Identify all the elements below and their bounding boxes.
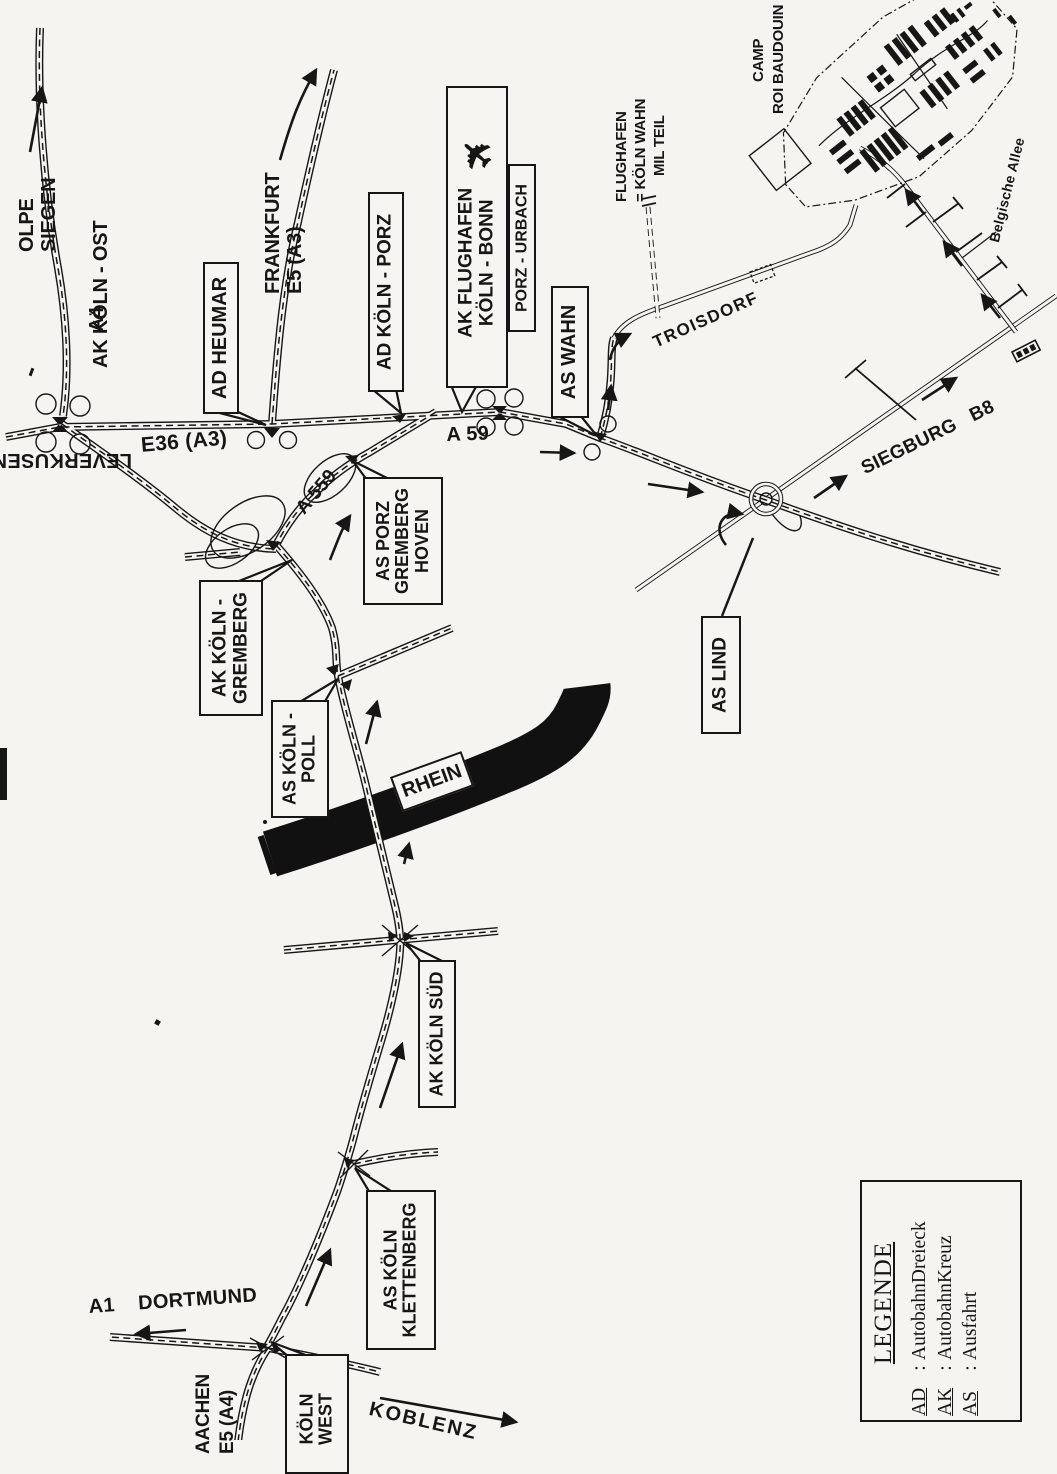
legend-content: LEGENDE AD : AutobahnDreieck AK : Autoba… xyxy=(870,1190,1016,1416)
label-leverkusen: LEVERKUSEN xyxy=(0,448,132,471)
label-flughafen-koeln-wahn: FLUGHAFEN= KÖLN WAHNMIL TEIL xyxy=(613,99,669,202)
label-frankfurt: FRANKFURTE5 (A3) xyxy=(262,172,307,294)
junction-label-ak-koeln-gremberg: AK KÖLN -GREMBERG xyxy=(199,580,263,716)
label-ak-koeln-ost: AK KÖLN - OST xyxy=(90,221,112,368)
legend-row-ak: AK : AutobahnKreuz xyxy=(933,1190,959,1416)
junction-label-ad-heumar: AD HEUMAR xyxy=(203,262,239,414)
junction-label-as-porz-gremberg-hoven: AS PORZGREMBERGHOVEN xyxy=(363,477,443,605)
outlying-buildings xyxy=(950,0,975,23)
junction-label-as-wahn: AS WAHN xyxy=(551,286,589,418)
junction-label-koeln-west: KÖLNWEST xyxy=(285,1354,349,1474)
junction-label-as-koeln-klettenberg: AS KÖLNKLETTENBERG xyxy=(366,1190,436,1350)
legend-title: LEGENDE xyxy=(870,1190,898,1416)
junction-label-as-lind: AS LIND xyxy=(701,616,741,734)
junction-label-lines: AK FLUGHAFENKÖLN - BONN xyxy=(456,188,497,338)
label-camp-roi-baudouin: CAMPROI BAUDOUIN xyxy=(749,5,790,114)
striped-building-icon xyxy=(1012,340,1040,362)
junction-label-ak-flughafen-koeln-bonn: AK FLUGHAFENKÖLN - BONN ✈ xyxy=(446,86,508,388)
road-map: OLPESIEGEN A4 AK KÖLN - OST FRANKFURTE5 … xyxy=(0,0,1057,1440)
junction-label-as-koeln-poll: AS KÖLN -POLL xyxy=(271,700,329,818)
legend: LEGENDE AD : AutobahnDreieck AK : Autoba… xyxy=(860,1180,1022,1422)
legend-row-ad: AD : AutobahnDreieck xyxy=(907,1190,933,1416)
junction-label-porz-urbach: PORZ - URBACH xyxy=(508,164,536,332)
label-a59: A 59 xyxy=(446,423,489,447)
junction-label-ak-koeln-sued: AK KÖLN SÜD xyxy=(418,960,456,1108)
label-olpe-siegen: OLPESIEGEN xyxy=(16,178,61,252)
legend-row-as: AS : Ausfahrt xyxy=(958,1190,984,1416)
scan-artifact xyxy=(0,748,7,800)
label-aachen-e5a4: AACHENE5 (A4) xyxy=(192,1374,240,1454)
scan-dot xyxy=(263,820,267,824)
airplane-icon: ✈ xyxy=(451,127,502,179)
interchange-ad-heumar xyxy=(248,428,297,449)
junction-label-ad-koeln-porz: AD KÖLN - PORZ xyxy=(368,192,404,392)
